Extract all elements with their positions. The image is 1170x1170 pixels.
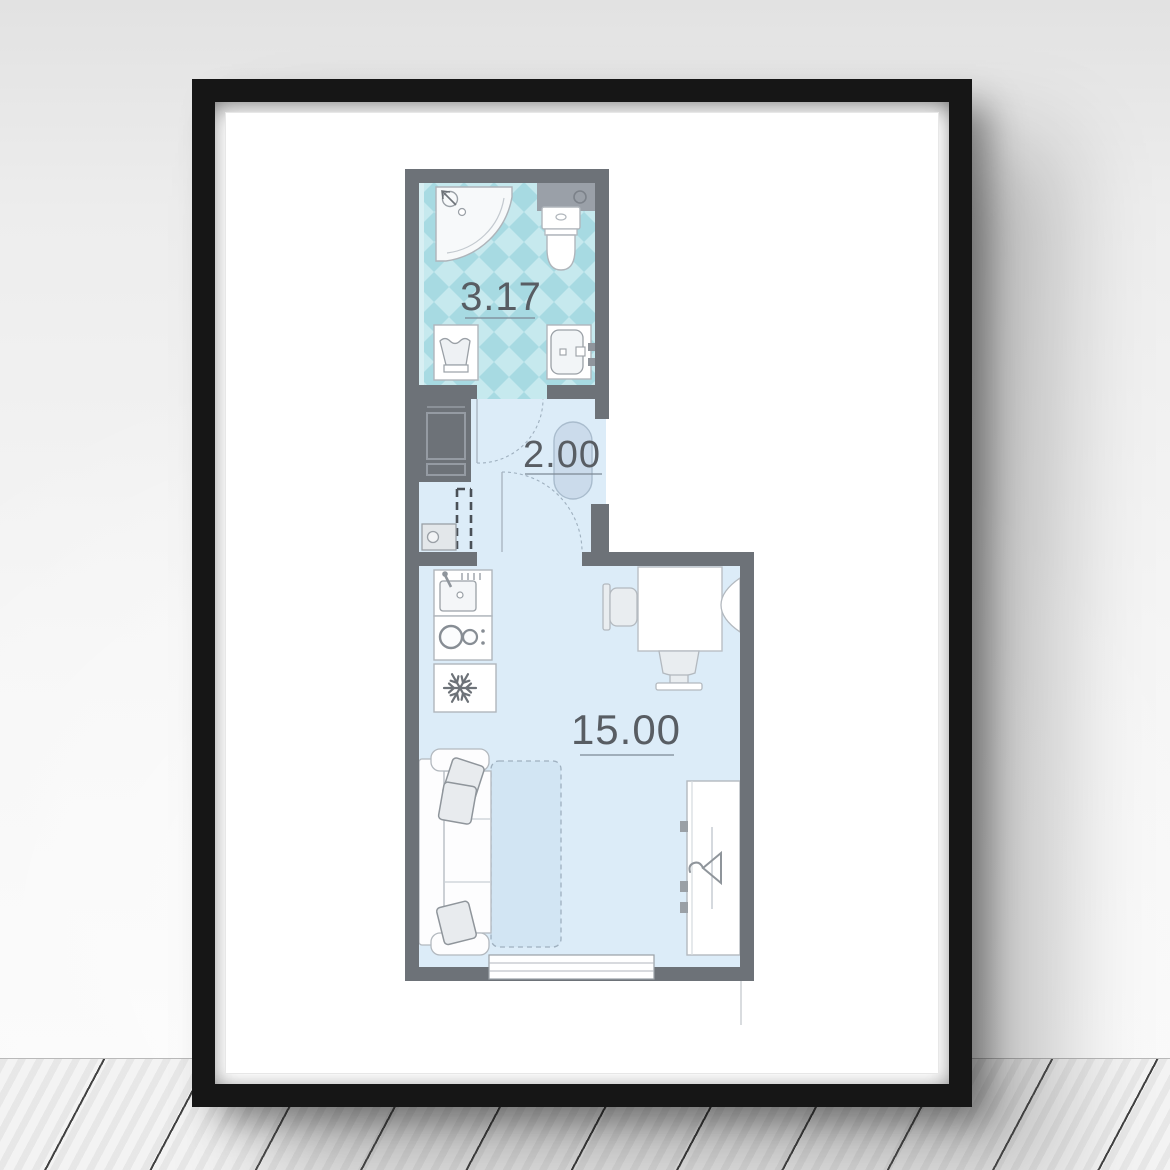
office-chair-bottom bbox=[656, 651, 702, 690]
desk bbox=[638, 567, 722, 651]
wardrobe bbox=[680, 781, 740, 955]
office-chair-left bbox=[603, 584, 637, 630]
living-room-area-label: 15.00 bbox=[571, 706, 681, 753]
passage-floor bbox=[477, 552, 582, 566]
fold-out-bed bbox=[491, 761, 561, 947]
poster-paper: 3.17 bbox=[225, 112, 939, 1074]
floor-plan: 3.17 bbox=[404, 167, 756, 1029]
bathroom-door-threshold bbox=[477, 385, 547, 399]
bathroom-area-label: 3.17 bbox=[460, 275, 542, 319]
floor-drain-icon bbox=[422, 524, 456, 550]
window bbox=[489, 955, 654, 979]
kitchen-sink-icon bbox=[434, 570, 492, 616]
tile-highlight bbox=[419, 183, 424, 385]
fridge-icon bbox=[434, 664, 496, 712]
stove-icon bbox=[434, 616, 492, 660]
bathroom-sink-icon bbox=[547, 325, 597, 379]
picture-frame: 3.17 bbox=[192, 79, 972, 1107]
hall-cabinet-icon bbox=[419, 399, 471, 482]
sofa bbox=[419, 749, 561, 955]
laundry-basket-icon bbox=[434, 325, 478, 380]
room-scene: 3.17 bbox=[0, 0, 1170, 1170]
frame-mat: 3.17 bbox=[215, 102, 949, 1084]
hallway-area-label: 2.00 bbox=[523, 434, 601, 476]
